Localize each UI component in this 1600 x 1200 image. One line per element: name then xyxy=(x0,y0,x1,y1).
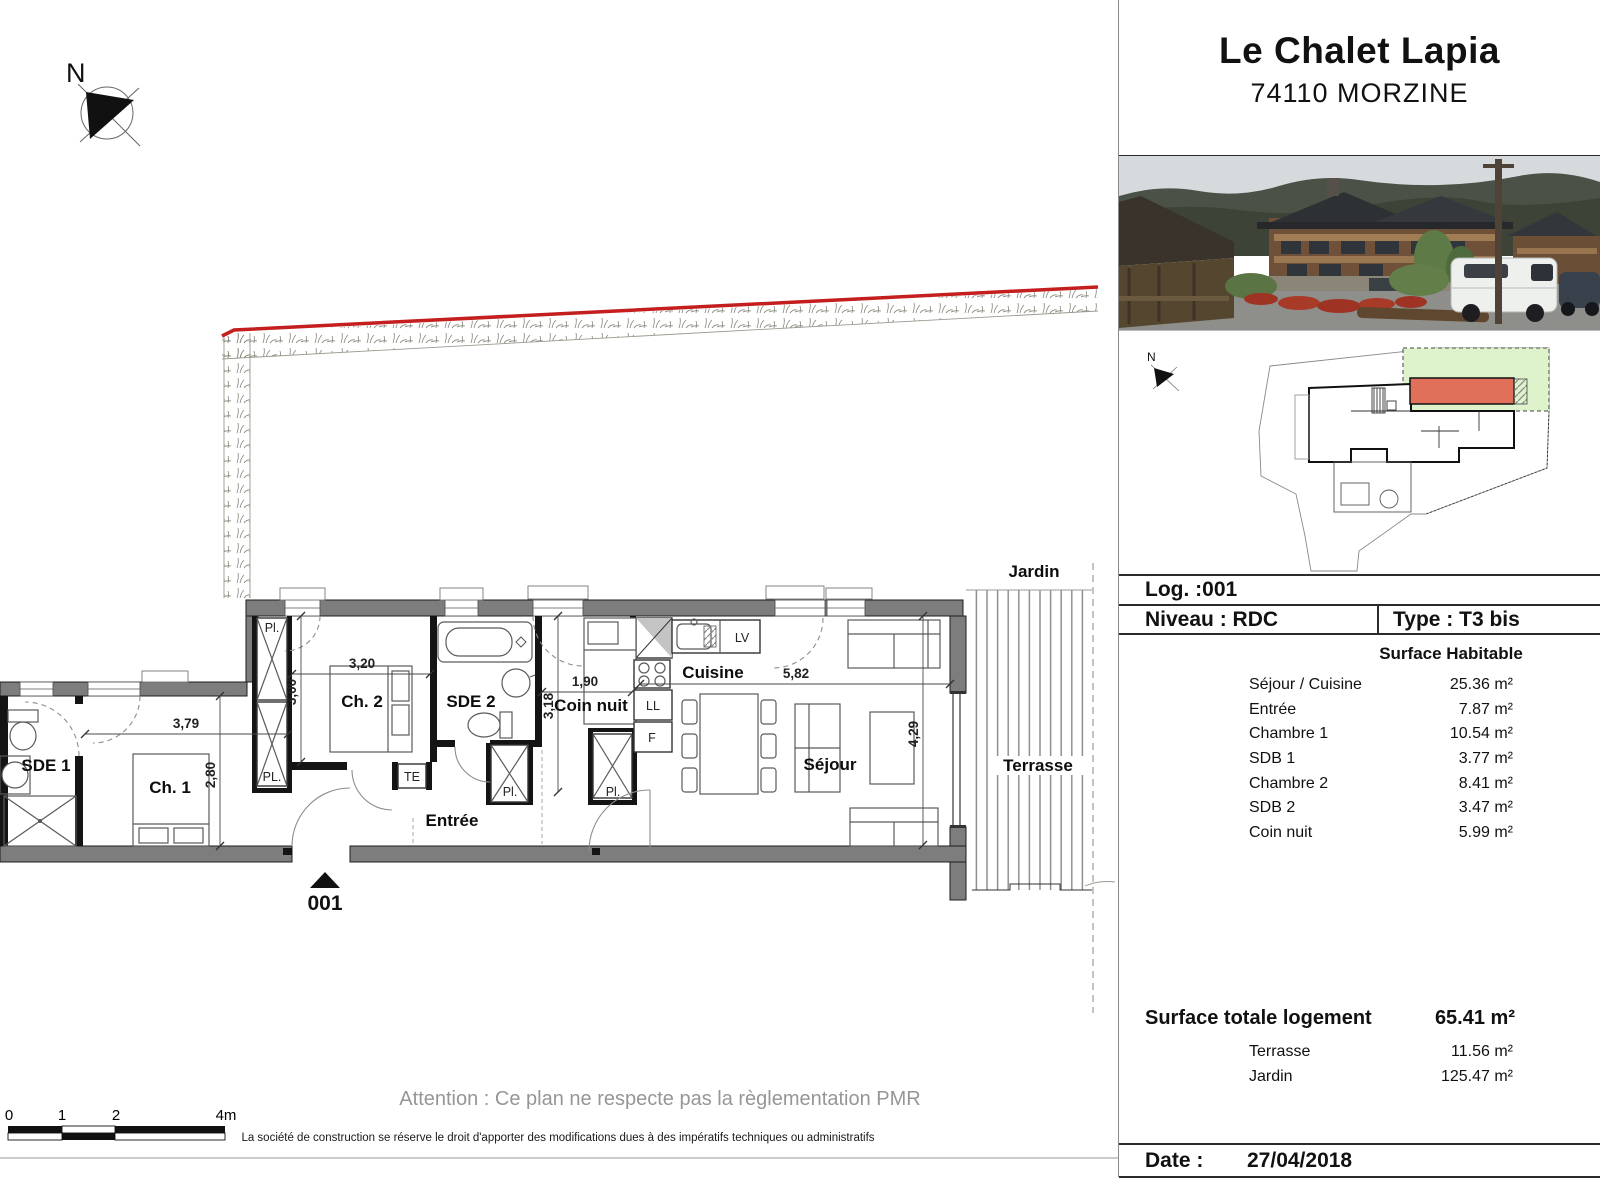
svg-text:0: 0 xyxy=(5,1107,13,1124)
table-row: Entrée 7.87 m² xyxy=(1119,698,1600,723)
row-value: 125.47 m² xyxy=(1441,1065,1513,1090)
table-row: Séjour / Cuisine 25.36 m² xyxy=(1119,673,1600,698)
table-row: Terrasse 11.56 m² xyxy=(1119,1040,1600,1065)
row-label: Chambre 2 xyxy=(1249,772,1328,797)
svg-text:4m: 4m xyxy=(216,1107,237,1124)
svg-text:N: N xyxy=(66,58,86,88)
label-ll: LL xyxy=(646,699,660,713)
row-value: 3.77 m² xyxy=(1459,747,1513,772)
row-label: Entrée xyxy=(1249,698,1296,723)
sitemap-north-arrow: N xyxy=(1147,350,1179,391)
stairs-hatch xyxy=(1514,379,1527,404)
dim-ch2-h: 3,00 xyxy=(284,679,299,705)
dim-coin-w: 1,90 xyxy=(572,674,598,689)
row-label: Coin nuit xyxy=(1249,821,1312,846)
dim-sejour-h: 4,29 xyxy=(906,721,921,747)
label-f: F xyxy=(648,731,656,745)
label-pl-entree: Pl. xyxy=(503,785,518,799)
log-label: Log. :001 xyxy=(1145,578,1237,601)
row-value: 5.99 m² xyxy=(1459,821,1513,846)
dim-ch1-h: 2,80 xyxy=(203,762,218,788)
window-cuisine xyxy=(775,600,825,616)
dim-ch1-w: 3,79 xyxy=(173,716,199,731)
site-map: N xyxy=(1119,331,1600,575)
sofa-bottom xyxy=(850,808,938,846)
label-entree: Entrée xyxy=(426,811,479,830)
row-label: Terrasse xyxy=(1249,1040,1310,1065)
table-row: Jardin 125.47 m² xyxy=(1119,1065,1600,1090)
title-block: Le Chalet Lapia 74110 MORZINE xyxy=(1119,30,1600,109)
armchair-left xyxy=(795,704,840,792)
attention-note: Attention : Ce plan ne respecte pas la r… xyxy=(399,1088,920,1110)
label-pl-top: Pl. xyxy=(265,621,280,635)
label-terrasse: Terrasse xyxy=(1003,756,1073,775)
row-value: 8.41 m² xyxy=(1459,772,1513,797)
chalet-photo xyxy=(1119,156,1600,330)
label-lv: LV xyxy=(735,631,750,645)
table-row: SDB 1 3.77 m² xyxy=(1119,747,1600,772)
dim-ch2-w: 3,20 xyxy=(349,656,375,671)
level-type-row: Niveau : RDC Type : T3 bis xyxy=(1119,606,1600,633)
row-label: Jardin xyxy=(1249,1065,1293,1090)
dim-coin-h: 3,18 xyxy=(541,692,556,719)
wc-sde1 xyxy=(8,710,38,750)
table-row: Chambre 1 10.54 m² xyxy=(1119,722,1600,747)
white-van xyxy=(1451,258,1557,322)
project-title: Le Chalet Lapia xyxy=(1119,30,1600,72)
row-value: 7.87 m² xyxy=(1459,698,1513,723)
exterior-surfaces: Terrasse 11.56 m² Jardin 125.47 m² xyxy=(1119,1040,1600,1089)
entrance-marker: 001 xyxy=(307,872,342,915)
label-ch2: Ch. 2 xyxy=(341,692,383,711)
surface-table: Séjour / Cuisine 25.36 m² Entrée 7.87 m²… xyxy=(1119,673,1600,846)
label-coin-nuit: Coin nuit xyxy=(554,696,628,715)
niveau-label: Niveau : RDC xyxy=(1145,606,1278,633)
terrace-door-window xyxy=(950,691,966,828)
window-sde2 xyxy=(445,600,478,616)
window-coin-nuit xyxy=(533,600,583,616)
svg-text:1: 1 xyxy=(58,1107,66,1124)
date-label: Date : xyxy=(1145,1146,1203,1176)
table-row: Coin nuit 5.99 m² xyxy=(1119,821,1600,846)
total-surface-row: Surface totale logement 65.41 m² xyxy=(1119,1004,1600,1032)
table-row: SDB 2 3.47 m² xyxy=(1119,796,1600,821)
label-ch1: Ch. 1 xyxy=(149,778,191,797)
project-location: 74110 MORZINE xyxy=(1119,78,1600,109)
svg-text:N: N xyxy=(1147,350,1156,364)
date-row: Date : 27/04/2018 xyxy=(1119,1146,1600,1176)
label-sde1: SDE 1 xyxy=(21,756,70,775)
row-label: SDB 1 xyxy=(1249,747,1295,772)
disclaimer-note: La société de construction se réserve le… xyxy=(241,1132,874,1144)
bathtub-sde2 xyxy=(438,622,532,662)
row-value: 25.36 m² xyxy=(1450,673,1513,698)
unit-highlight xyxy=(1410,378,1514,404)
row-label: Chambre 1 xyxy=(1249,722,1328,747)
footer-notes: Attention : Ce plan ne respecte pas la r… xyxy=(0,1088,1118,1158)
window-left-2 xyxy=(88,682,140,696)
north-arrow: N xyxy=(66,58,140,146)
label-pl-coin: Pl. xyxy=(606,785,621,799)
total-value: 65.41 m² xyxy=(1435,1004,1515,1032)
row-label: SDB 2 xyxy=(1249,796,1295,821)
plan-sheet: N xyxy=(0,0,1600,1200)
window-sejour xyxy=(827,600,865,616)
label-sde2: SDE 2 xyxy=(446,692,495,711)
log-row: Log. :001 xyxy=(1119,576,1600,604)
label-sejour: Séjour xyxy=(804,755,857,774)
table-row: Chambre 2 8.41 m² xyxy=(1119,772,1600,797)
date-value: 27/04/2018 xyxy=(1247,1146,1352,1176)
type-label: Type : T3 bis xyxy=(1393,606,1520,633)
info-panel: Le Chalet Lapia 74110 MORZINE xyxy=(1118,0,1600,1177)
wc-sde2 xyxy=(468,712,512,738)
svg-text:001: 001 xyxy=(307,892,342,915)
label-te: TE xyxy=(404,770,420,784)
scale-bar: 0 1 2 4m xyxy=(5,1107,237,1140)
terrace xyxy=(966,563,1115,1013)
shower-sde1 xyxy=(4,796,76,846)
terrain-boundary xyxy=(222,287,1098,598)
row-value: 10.54 m² xyxy=(1450,722,1513,747)
surface-header: Surface Habitable xyxy=(1379,644,1523,664)
label-cuisine: Cuisine xyxy=(682,663,743,682)
row-label: Séjour / Cuisine xyxy=(1249,673,1362,698)
sofa-top xyxy=(848,620,940,668)
label-pl-bottom: PL. xyxy=(263,770,282,784)
row-value: 11.56 m² xyxy=(1451,1040,1513,1065)
total-label: Surface totale logement xyxy=(1145,1004,1372,1032)
floor-plan-drawing: N xyxy=(0,0,1118,1200)
row-value: 3.47 m² xyxy=(1459,796,1513,821)
svg-text:2: 2 xyxy=(112,1107,120,1124)
dining-table xyxy=(682,694,776,794)
basin-sde2 xyxy=(502,669,535,697)
dim-sejour-w: 5,82 xyxy=(783,666,809,681)
label-jardin: Jardin xyxy=(1008,562,1059,581)
window-left-1 xyxy=(20,682,53,696)
bed-ch1 xyxy=(133,754,209,846)
